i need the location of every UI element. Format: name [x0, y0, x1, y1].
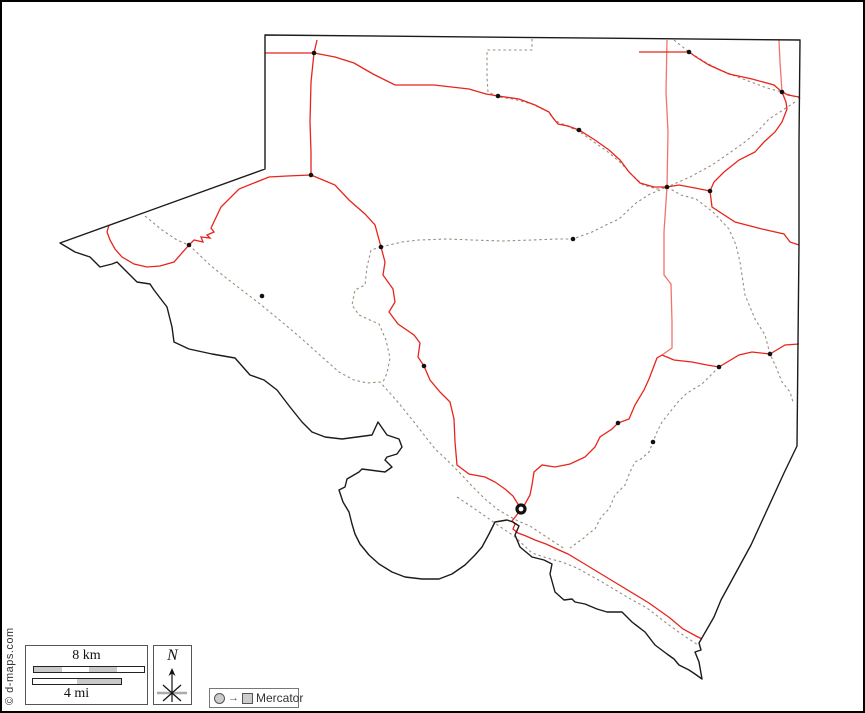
attribution-text: © d-maps.com	[4, 627, 16, 705]
scale-segment	[34, 667, 62, 672]
town-dot	[708, 189, 713, 194]
dashed-road	[381, 187, 667, 247]
scale-mi-bar	[32, 678, 122, 685]
main-road	[710, 92, 787, 191]
town-symbol-icon	[214, 693, 225, 704]
scale-segment	[117, 667, 145, 672]
main-road	[310, 40, 317, 175]
main-road	[667, 185, 799, 245]
towns-layer	[187, 50, 785, 445]
scale-km-label: 8 km	[26, 648, 147, 664]
main-road	[521, 355, 662, 509]
scale-km-bar	[33, 666, 145, 673]
dashed-roads-layer	[145, 39, 802, 645]
town-dot	[780, 90, 785, 95]
dashed-road	[667, 102, 795, 187]
scale-bar-box: 8 km 4 mi	[25, 645, 148, 705]
county-map	[2, 2, 865, 713]
county-seat-marker	[517, 505, 525, 513]
town-dot	[309, 173, 314, 178]
town-dot	[577, 128, 582, 133]
town-dot	[687, 50, 692, 55]
town-dot	[260, 294, 265, 299]
town-dot	[187, 243, 192, 248]
town-dot	[422, 364, 427, 369]
main-road	[512, 509, 702, 639]
dashed-road	[145, 216, 565, 549]
town-dot	[616, 421, 621, 426]
county-outline	[60, 35, 800, 679]
scale-segment	[89, 667, 117, 672]
town-dot	[717, 365, 722, 370]
projection-legend-box: → Mercator	[209, 688, 299, 708]
town-dot	[571, 237, 576, 242]
scale-mi-label: 4 mi	[26, 686, 127, 702]
map-canvas: 8 km 4 mi N → Mercator © d-maps.com	[0, 0, 865, 713]
red-roads-layer	[107, 40, 799, 639]
town-dot	[496, 94, 501, 99]
secondary-road	[662, 40, 672, 355]
town-dot	[312, 51, 317, 56]
scale-segment	[77, 679, 121, 684]
compass-rose-icon	[154, 666, 191, 704]
town-dot	[665, 185, 670, 190]
arrow-icon: →	[228, 693, 239, 704]
projection-label: Mercator	[256, 691, 303, 705]
north-arrow-box: N	[153, 645, 192, 705]
dashed-road	[457, 497, 698, 645]
town-dot	[379, 245, 384, 250]
main-road	[311, 175, 521, 509]
scale-segment	[33, 679, 77, 684]
scale-segment	[62, 667, 90, 672]
secondary-road	[779, 40, 782, 92]
town-dot	[651, 440, 656, 445]
dashed-road	[570, 367, 719, 548]
dashed-road	[487, 39, 667, 189]
north-label: N	[154, 647, 191, 665]
seat-symbol-icon	[242, 693, 253, 704]
main-road	[314, 53, 667, 187]
town-dot	[768, 352, 773, 357]
main-road	[662, 344, 799, 367]
